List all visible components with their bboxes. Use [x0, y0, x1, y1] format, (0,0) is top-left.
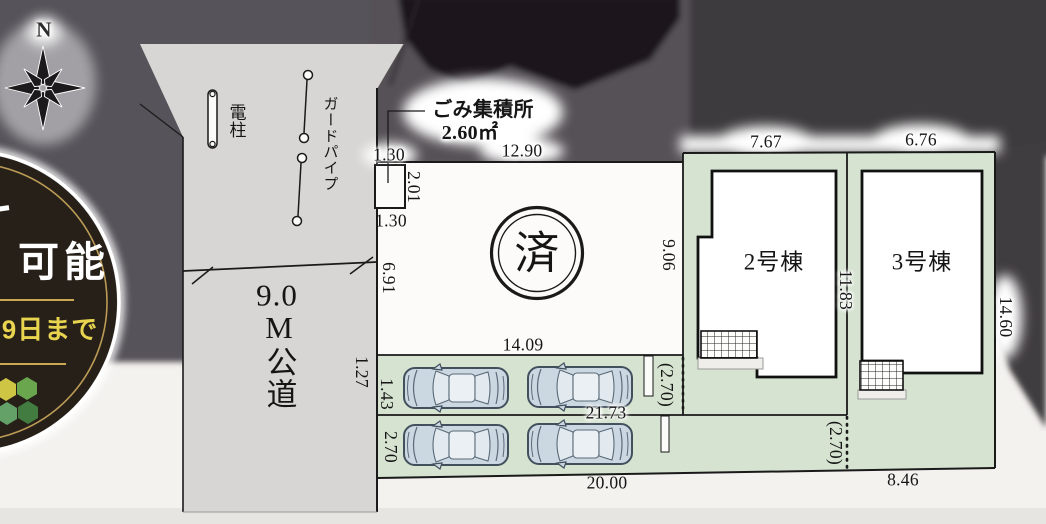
garbage-station-area: 2.60㎡: [442, 123, 499, 143]
dim-lot1-top: 12.90: [502, 142, 543, 160]
dim-garbage-bottom: 1.30: [375, 212, 407, 230]
dim-parking-top: 14.09: [503, 336, 544, 354]
badge-sub-text: 9日まで: [2, 310, 98, 347]
car-icon: [404, 421, 508, 469]
dim-lot2-top: 7.67: [750, 133, 782, 151]
road-label-line1: 9.0: [256, 280, 298, 311]
dim-setback-inner: (2.70): [657, 363, 675, 407]
entrance-hatch-3: [860, 361, 903, 390]
dim-garbage-side: 2.01: [404, 171, 422, 203]
dim-parking-bottom: 20.00: [587, 474, 628, 492]
utility-pole-label: 電柱: [228, 104, 245, 139]
building-2-label: 2号棟: [744, 251, 805, 274]
garbage-station-title: ごみ集積所: [432, 100, 534, 120]
building-3-label: 3号棟: [892, 251, 953, 274]
dim-lot3-bottom: 8.46: [887, 471, 919, 489]
building-2-step: [698, 358, 763, 369]
road-label-line2: M公道: [264, 310, 295, 410]
dim-lot3-right: 14.60: [996, 297, 1014, 338]
dim-parking-row2: 2.70: [381, 431, 399, 463]
entrance-hatch-2: [701, 331, 757, 358]
dim-lot3-top: 6.76: [905, 131, 937, 149]
dim-lot-divider: 11.83: [836, 270, 854, 310]
car-icon: [404, 364, 508, 412]
building-3-step: [858, 390, 906, 399]
dim-frontage-upper: 6.91: [379, 262, 397, 294]
dim-parking-mid: 21.73: [586, 404, 627, 422]
sold-badge-label: 済: [514, 232, 559, 277]
utility-pole-icon: [208, 90, 217, 148]
badge-main-text: 可能: [18, 228, 110, 288]
dim-setback-outer: (2.70): [826, 421, 844, 465]
site-plan-image: N 可能 9日まで ごみ集積所 2.60㎡ 1.30 2.01 1.30 6.9…: [0, 0, 1046, 524]
dim-parking-row1: 1.43: [377, 378, 395, 410]
garbage-station-box: [375, 165, 405, 208]
paper-bottom-edge: [0, 508, 1046, 524]
compass-north-label: N: [36, 20, 51, 41]
dim-garbage-top: 1.30: [373, 146, 405, 164]
dim-lot2-left: 9.06: [659, 239, 677, 271]
guard-pipe-label: ガードパイプ: [322, 96, 337, 192]
dim-frontage-lower: 1.27: [352, 356, 370, 388]
car-icon: [528, 420, 632, 468]
